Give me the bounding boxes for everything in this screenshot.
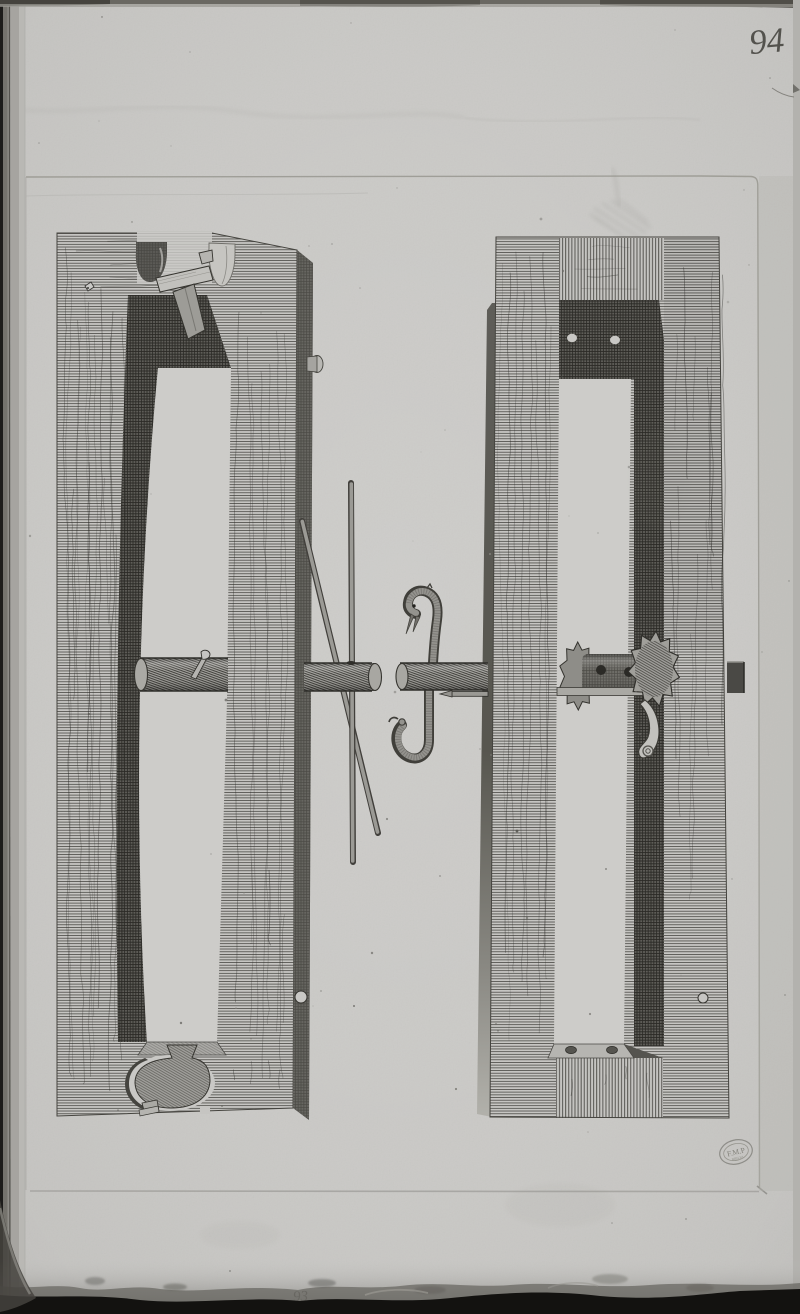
svg-text:94: 94 [747, 20, 785, 62]
